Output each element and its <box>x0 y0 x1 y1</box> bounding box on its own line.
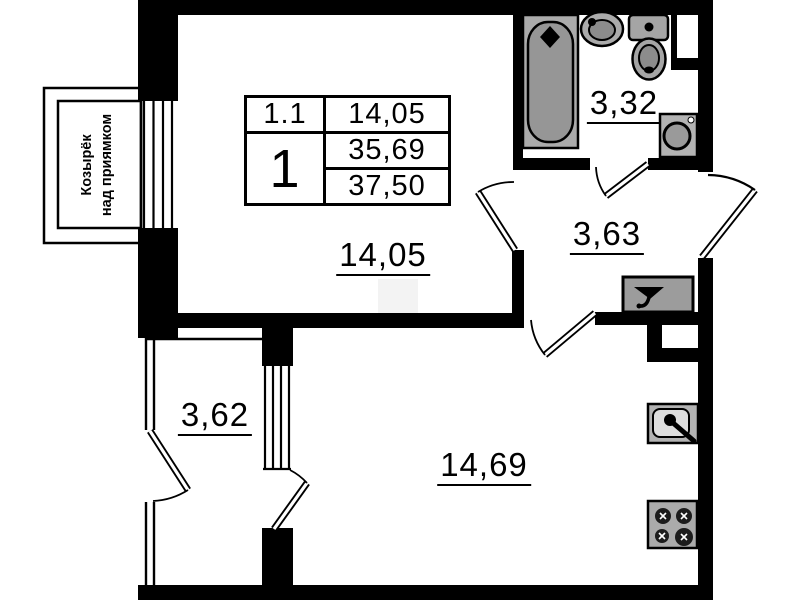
room-label-living: 14,05 <box>336 238 430 276</box>
door-swing-arc <box>596 167 606 196</box>
room-label-balcony: 3,62 <box>178 398 252 436</box>
washer-knob <box>688 117 694 123</box>
wall-segment <box>595 312 713 325</box>
wall-segment <box>698 258 713 585</box>
door-entrance <box>702 175 755 257</box>
area-no-balcony-cell: 35,69 <box>325 133 450 169</box>
watermark <box>378 279 418 313</box>
wall-segment <box>138 313 522 328</box>
room-label-bathroom: 3,32 <box>587 86 661 124</box>
room-number-cell: 1.1 <box>246 97 325 133</box>
vent-fan-dot <box>637 304 642 309</box>
stove-icon <box>648 501 697 548</box>
canopy-line-1: Козырёк <box>78 102 98 228</box>
floor-plan-drawing <box>0 0 799 600</box>
toilet-icon <box>629 15 668 80</box>
wall-segment <box>138 0 178 101</box>
door-leaf-inner <box>478 192 515 250</box>
wall-segment <box>262 328 293 366</box>
wall-segment <box>262 528 293 585</box>
balcony-glazing <box>145 338 262 585</box>
wall-segment <box>138 0 713 15</box>
sink-tap <box>588 18 596 26</box>
wall-segment <box>647 348 713 362</box>
washing-machine-icon <box>660 114 697 157</box>
door-swing-arc <box>478 182 514 192</box>
wall-segment <box>648 158 698 170</box>
total-area-cell: 37,50 <box>325 169 450 205</box>
wall-segment <box>671 58 698 70</box>
wall-segment <box>513 158 590 170</box>
door-living-room <box>478 182 515 250</box>
door-leaf-inner <box>274 483 307 529</box>
floor-plan: 1.1 14,05 1 35,69 37,50 14,05 3,32 3,63 … <box>0 0 799 600</box>
room-label-kitchen: 14,69 <box>437 448 531 486</box>
living-area-cell: 14,05 <box>325 97 450 133</box>
door-kitchen <box>531 313 595 355</box>
bathtub-icon <box>523 15 578 148</box>
door-swing-arc <box>708 175 755 190</box>
toilet-button <box>645 23 654 32</box>
door-leaf-inner <box>702 190 755 257</box>
canopy-annotation: Козырёк над приямком <box>78 102 120 228</box>
vent-fan-icon <box>623 277 693 312</box>
wall-segment <box>671 15 677 60</box>
wall-segment <box>647 325 662 350</box>
wall-segment <box>698 0 713 172</box>
door-bathroom <box>596 164 648 196</box>
wall-segment <box>513 15 523 170</box>
canopy-line-2: над приямком <box>98 102 118 228</box>
door-swing-arc <box>290 470 307 483</box>
door-swing-arc <box>531 320 545 355</box>
toilet-drain <box>644 67 654 74</box>
washer-drum <box>664 123 690 149</box>
door-swing-arc <box>153 490 188 501</box>
door-leaf-inner <box>545 313 595 355</box>
vent-box <box>623 277 693 312</box>
door-leaf-inner <box>150 431 188 490</box>
door-leaf-inner <box>606 164 648 196</box>
room-label-hall: 3,63 <box>570 217 644 255</box>
bathroom-sink-icon <box>581 12 623 46</box>
door-balcony-kitchen <box>274 470 307 529</box>
door-balcony-exterior <box>150 431 188 501</box>
unit-number-cell: 1 <box>246 133 325 205</box>
window-left-wall <box>144 101 172 228</box>
wall-segment <box>138 585 713 600</box>
area-table: 1.1 14,05 1 35,69 37,50 <box>244 95 451 206</box>
kitchen-sink-icon <box>648 404 698 443</box>
window-balcony-kitchen <box>263 366 291 469</box>
